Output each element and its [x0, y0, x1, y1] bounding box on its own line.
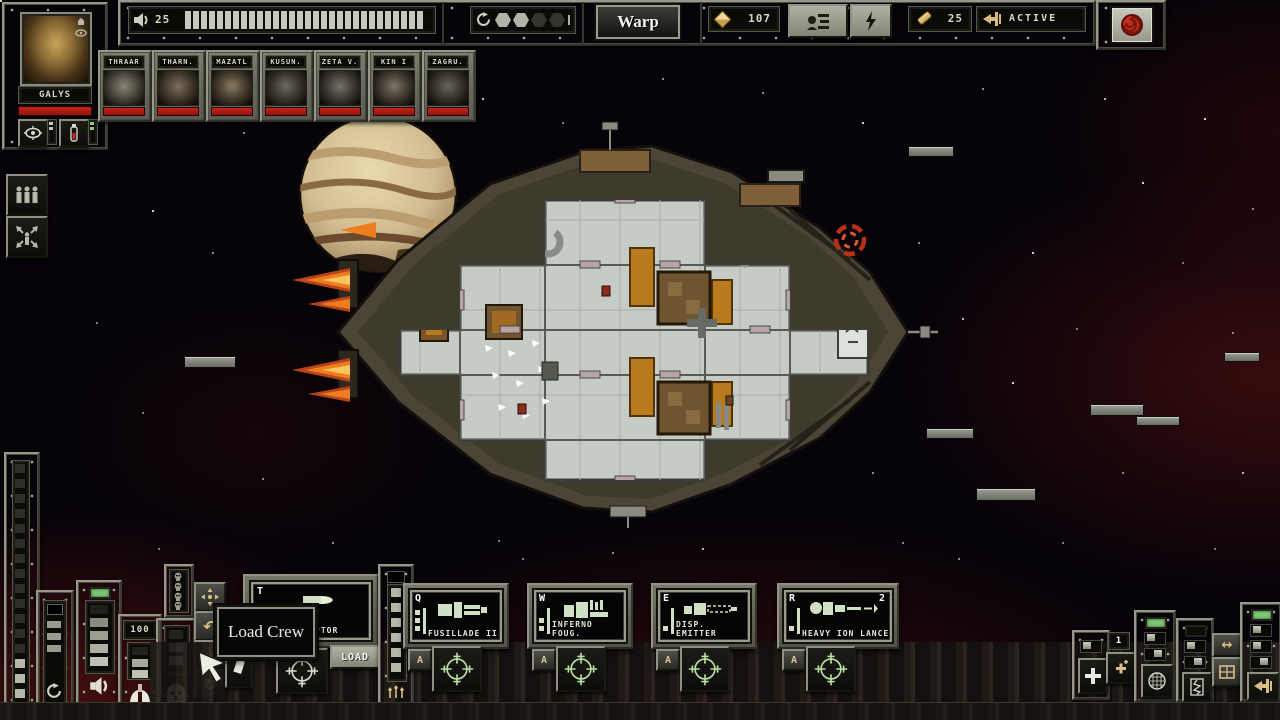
crosshair-icon: [563, 651, 599, 687]
crew-health-bar: [103, 107, 145, 116]
weapon-art: [682, 598, 740, 620]
shell-icon: [916, 10, 933, 26]
intake-icon: [1254, 678, 1272, 694]
crew-card[interactable]: MAZATL: [206, 50, 260, 122]
swap-icon: ↔: [1222, 638, 1233, 653]
heal-counter: 1: [1108, 632, 1130, 650]
undo-icon: ↶: [203, 617, 216, 636]
eye-icon: [24, 126, 42, 140]
intake-status: ACTIVE: [1009, 13, 1057, 24]
distant-ship: [976, 488, 1036, 501]
crew-manifest-button[interactable]: [788, 4, 848, 38]
warp-pip-empty: [531, 13, 547, 27]
crew-portrait: [373, 70, 415, 106]
crew-name: MAZATL: [216, 58, 247, 66]
crew-name: KIN I: [381, 58, 407, 66]
weapon-panel-w: W INFERNO FOUG.: [527, 583, 633, 649]
capacitor-led: [1185, 625, 1207, 637]
alert-icon: [75, 17, 87, 39]
triple-chevron-icon: [388, 684, 404, 700]
tooltip-text: Load Crew: [228, 622, 304, 642]
autofire-label: A: [417, 655, 423, 666]
stimulant-gauge: [88, 119, 98, 145]
awareness-button[interactable]: [18, 119, 48, 147]
crew-health-bar: [427, 107, 469, 116]
capacitor-button[interactable]: [1182, 672, 1212, 702]
clock-icon: [476, 12, 491, 27]
disperse-crew-button[interactable]: [6, 216, 48, 258]
weapon-name: HEAVY ION LANCE: [802, 629, 889, 638]
volume-value: 25: [155, 13, 170, 26]
weapon-panel-q: Q FUSILLADE II: [403, 583, 509, 649]
heal-count-value: 1: [1116, 636, 1122, 646]
player-health-bar: [18, 106, 92, 116]
target-button-e[interactable]: [680, 646, 730, 692]
crew-card[interactable]: THARN.: [152, 50, 206, 122]
weapon-art: [436, 598, 488, 622]
speaker-icon: [133, 12, 149, 28]
intake-icon: [983, 11, 1001, 27]
intake-readout: ACTIVE: [976, 6, 1086, 32]
scoop-button[interactable]: [1247, 672, 1279, 700]
target-button-r[interactable]: [806, 646, 856, 692]
ammo-bar: [797, 608, 800, 634]
clock-gauge-panel: [36, 590, 74, 720]
ammo-bar: [547, 608, 550, 634]
warp-pip-filled: [495, 13, 511, 27]
shield-net-button[interactable]: [1141, 664, 1173, 698]
shell-icon: [232, 659, 246, 679]
crew-health-bar: [157, 107, 199, 116]
target-button-q[interactable]: [432, 646, 482, 692]
scoop-toggle-3[interactable]: [1250, 656, 1272, 669]
weapon-key: E: [663, 593, 670, 604]
load-button-label: LOAD: [341, 652, 369, 663]
shell-readout: 25: [908, 6, 972, 32]
weapon-key: R: [789, 593, 796, 604]
weapon-key: T: [257, 586, 264, 597]
chaos-rose-button[interactable]: [1110, 6, 1154, 44]
target-button-w[interactable]: [556, 646, 606, 692]
shell-icon: [301, 592, 335, 608]
weapon-name: INFERNO FOUG.: [552, 620, 624, 638]
distant-ship: [908, 146, 954, 157]
casualty-panel: [164, 564, 194, 618]
sparkle-plus-icon: [1113, 660, 1129, 676]
crew-card[interactable]: ZAGRU.: [422, 50, 476, 122]
mesh-icon: [1147, 671, 1167, 691]
select-all-crew-button[interactable]: [6, 174, 48, 216]
alert-led: [89, 587, 111, 599]
shell-value: 25: [948, 12, 963, 25]
shield-toggle-1[interactable]: [1144, 632, 1166, 645]
hull-cells-empty: [15, 464, 25, 659]
autofire-button-e[interactable]: A: [656, 649, 680, 671]
move-icon: [201, 588, 219, 606]
crew-portrait: [157, 70, 199, 106]
stimulant-button[interactable]: [59, 119, 89, 147]
capacitor-panel: [1176, 618, 1214, 702]
player-ship[interactable]: [280, 110, 940, 530]
vial-icon: [69, 124, 79, 142]
rose-icon: [1119, 12, 1145, 38]
bolt-icon: [864, 11, 878, 31]
crew-portrait: [319, 70, 361, 106]
distant-ship: [1136, 416, 1180, 426]
coin-icon: [713, 10, 731, 28]
clock-icon: [46, 683, 62, 699]
crew-name: KUSUN.: [270, 58, 301, 66]
status-bar: INTERNAL - 2024.03.17 - 1948 TORMENT VI …: [0, 702, 1280, 720]
autofire-label: A: [665, 655, 671, 666]
crosshair-icon: [439, 651, 475, 687]
cargo-button[interactable]: [1212, 657, 1242, 687]
cargo-icon: [1219, 664, 1235, 680]
distant-ship: [926, 428, 974, 439]
weapon-panel-e: E DISP. EMITTER: [651, 583, 757, 649]
weapon-key: W: [539, 593, 546, 604]
ammo-bar: [423, 608, 426, 634]
roster-icon: [805, 11, 831, 31]
distant-ship: [184, 356, 236, 368]
shield-panel: [1134, 610, 1176, 702]
scoop-panel: [1240, 602, 1280, 702]
shield-toggle-2[interactable]: [1144, 648, 1166, 661]
scoop-toggle-1[interactable]: [1250, 624, 1272, 637]
distant-ship: [1224, 352, 1260, 362]
ammo-bar: [671, 608, 674, 634]
hull-gauge-panel: [4, 452, 40, 720]
crew-group-icon: [14, 185, 40, 205]
heal-button[interactable]: [1106, 652, 1136, 684]
player-name: GALYS: [39, 90, 71, 100]
autofire-button-w[interactable]: A: [532, 649, 556, 671]
scoop-led: [1251, 609, 1273, 621]
power-button[interactable]: [850, 4, 892, 38]
crew-health-bar: [319, 107, 361, 116]
autofire-button-r[interactable]: A: [782, 649, 806, 671]
crosshair-icon: [284, 653, 320, 689]
repair-button[interactable]: [1078, 658, 1108, 694]
skull-icon: [173, 572, 183, 610]
crew-roster: THRAAR THARN. MAZATL KUSUN. ZETA V. KIN …: [98, 50, 478, 120]
crew-portrait: [427, 70, 469, 106]
crew-card[interactable]: KUSUN.: [260, 50, 314, 122]
crew-health-bar: [265, 107, 307, 116]
weapon-art: [808, 597, 880, 621]
crosshair-icon: [813, 651, 849, 687]
tooltip: Load Crew: [217, 607, 315, 657]
speaker-icon: [89, 676, 109, 696]
awareness-gauge: [47, 119, 57, 145]
autofire-label: A: [541, 655, 547, 666]
disperse-icon: [14, 224, 40, 250]
player-portrait[interactable]: [22, 14, 90, 84]
capacitor-toggle-2[interactable]: [1184, 656, 1206, 669]
shield-led: [1145, 617, 1167, 629]
oxygen-value: 100: [130, 625, 149, 635]
hull-cells-filled: [15, 659, 25, 707]
weapon-count: 2: [879, 593, 886, 604]
crew-card[interactable]: KIN I: [368, 50, 422, 122]
alert-gauge-panel: [76, 580, 122, 706]
crew-name: THARN.: [162, 58, 193, 66]
scoop-toggle-2[interactable]: [1250, 640, 1272, 653]
game-viewport: 25 Warp 107 25: [0, 0, 1280, 720]
weapon-name: FUSILLADE II: [428, 629, 498, 638]
player-nameplate: GALYS: [18, 86, 92, 104]
coin-readout: 107: [708, 6, 780, 32]
crew-portrait: [265, 70, 307, 106]
autofire-button-q[interactable]: A: [408, 649, 432, 671]
weapon-name: DISP. EMITTER: [676, 620, 748, 638]
capacitor-toggle-1[interactable]: [1184, 640, 1206, 653]
warp-pip-filled: [513, 13, 529, 27]
volume-segments: [185, 11, 425, 29]
weapon-key: Q: [415, 593, 422, 604]
warp-button[interactable]: Warp: [596, 5, 680, 39]
crew-name: ZAGRU.: [432, 58, 463, 66]
crew-card[interactable]: THRAAR: [98, 50, 152, 122]
warp-button-label: Warp: [617, 12, 659, 32]
coin-value: 107: [748, 12, 771, 25]
crew-health-bar: [211, 107, 253, 116]
crew-card[interactable]: ZETA V.: [314, 50, 368, 122]
crew-name: THRAAR: [108, 58, 139, 66]
cursor-pointer: [196, 650, 228, 684]
warp-pip-empty: [549, 13, 565, 27]
plus-icon: [1085, 668, 1101, 684]
repair-panel: [1072, 630, 1110, 700]
autofire-label: A: [791, 655, 797, 666]
crosshair-icon: [687, 651, 723, 687]
player-panel: GALYS: [2, 2, 108, 150]
transfer-button[interactable]: ↔: [1212, 633, 1242, 657]
crew-portrait: [103, 70, 145, 106]
coil-icon: [1190, 678, 1204, 696]
weapon-name: PTOR: [315, 626, 338, 635]
repair-toggle[interactable]: [1080, 640, 1102, 653]
crew-portrait: [211, 70, 253, 106]
volume-readout: 25: [128, 6, 436, 34]
distant-ship: [1090, 404, 1144, 416]
crew-name: ZETA V.: [322, 58, 359, 66]
weapon-panel-r: R 2 HEAVY ION LANCE: [777, 583, 899, 649]
load-button[interactable]: LOAD: [330, 645, 380, 669]
crew-health-bar: [373, 107, 415, 116]
warp-charge-gauge: [470, 6, 576, 34]
